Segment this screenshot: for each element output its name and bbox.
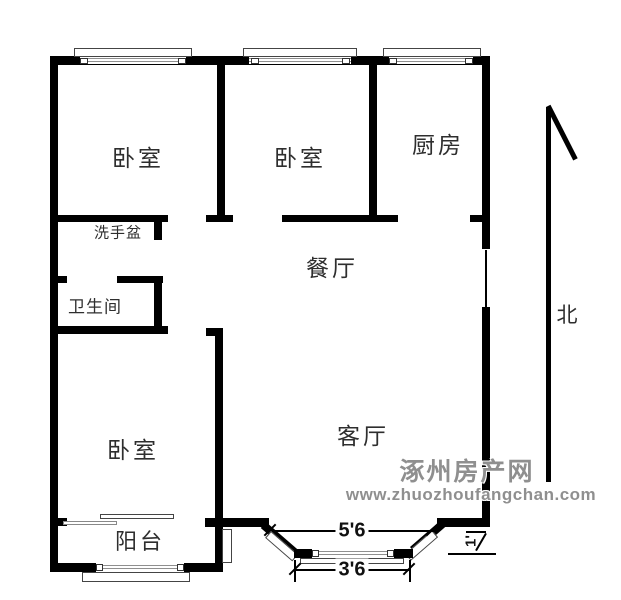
balcony-side-door-leaf (222, 529, 232, 563)
wall-bed1-bed2 (217, 64, 225, 216)
wall-right-upper (482, 56, 490, 249)
window-kitchen (389, 57, 473, 64)
dim-text-1ft: 1' (463, 535, 480, 547)
watermark-site-name: 涿州房产网 (399, 452, 534, 488)
window-bedroom2-end-right (342, 58, 350, 64)
wall-bathroom-stub (50, 276, 67, 283)
room-label-kitchen: 厨房 (412, 126, 464, 160)
window-kitchen-end-right (465, 58, 473, 64)
wall-bed1-bed2-cap (206, 215, 233, 222)
wall-balcony-bottom-left (50, 563, 96, 572)
wall-bed2-bottom (282, 215, 398, 222)
bay-bottom-block-right (394, 549, 413, 558)
wall-bedroom3-cap (206, 328, 223, 336)
balcony-window-end-right (177, 564, 184, 571)
floor-plan: 北 5'6 3'6 1' 卧室 卧室 厨房 餐厅 洗手盆 卫生间 卧室 阳台 客… (0, 0, 621, 600)
window-bedroom1-end-right (178, 58, 186, 64)
dim-ext-3-6-right (409, 560, 411, 582)
room-label-washbasin: 洗手盆 (94, 222, 142, 243)
window-sill-bedroom2 (243, 48, 357, 57)
room-label-bedroom-top-left: 卧室 (112, 139, 164, 173)
north-label: 北 (557, 299, 578, 329)
bay-window-end-right (387, 550, 394, 557)
bay-bottom-block-left (294, 549, 312, 558)
window-bedroom1-end-left (80, 58, 88, 64)
balcony-slider-leaf-lower (63, 521, 117, 525)
window-sill-kitchen (383, 48, 481, 57)
room-label-balcony: 阳台 (115, 524, 165, 556)
room-label-bedroom-bottom: 卧室 (107, 431, 159, 465)
balcony-slider-leaf-upper (100, 514, 174, 519)
window-sill-bedroom1 (74, 48, 192, 57)
bay-window-glazing (312, 550, 394, 557)
entrance-door-leaf (485, 250, 487, 307)
wall-bed2-kitchen (369, 64, 377, 216)
window-bedroom1 (80, 57, 186, 64)
wall-left (50, 56, 58, 572)
window-kitchen-end-left (389, 58, 397, 64)
room-label-bedroom-top-middle: 卧室 (274, 139, 326, 173)
bay-window-end-left (312, 550, 319, 557)
window-bedroom2-end-left (251, 58, 259, 64)
wall-bathroom-bottom (57, 326, 168, 334)
dim-text-5-6: 5'6 (335, 520, 368, 543)
north-arrow-shaft (546, 107, 551, 482)
dim-line-1ft-upper (466, 531, 486, 533)
dim-text-3-6: 3'6 (335, 559, 368, 582)
room-label-bathroom: 卫生间 (68, 293, 122, 318)
wall-bathroom-right (154, 276, 162, 333)
balcony-window-outer-sill (82, 572, 190, 582)
watermark-site-url: www.zhuozhoufangchan.com (346, 485, 596, 505)
room-label-living: 客厅 (337, 417, 389, 451)
room-label-dining: 餐厅 (306, 249, 358, 283)
window-bedroom2 (249, 57, 351, 64)
dim-line-1ft-lower (448, 553, 496, 555)
balcony-window-glazing (96, 563, 184, 572)
wall-washbasin-stub (154, 222, 162, 240)
balcony-window-end-left (96, 564, 103, 571)
wall-kitchen-stub (470, 215, 482, 222)
